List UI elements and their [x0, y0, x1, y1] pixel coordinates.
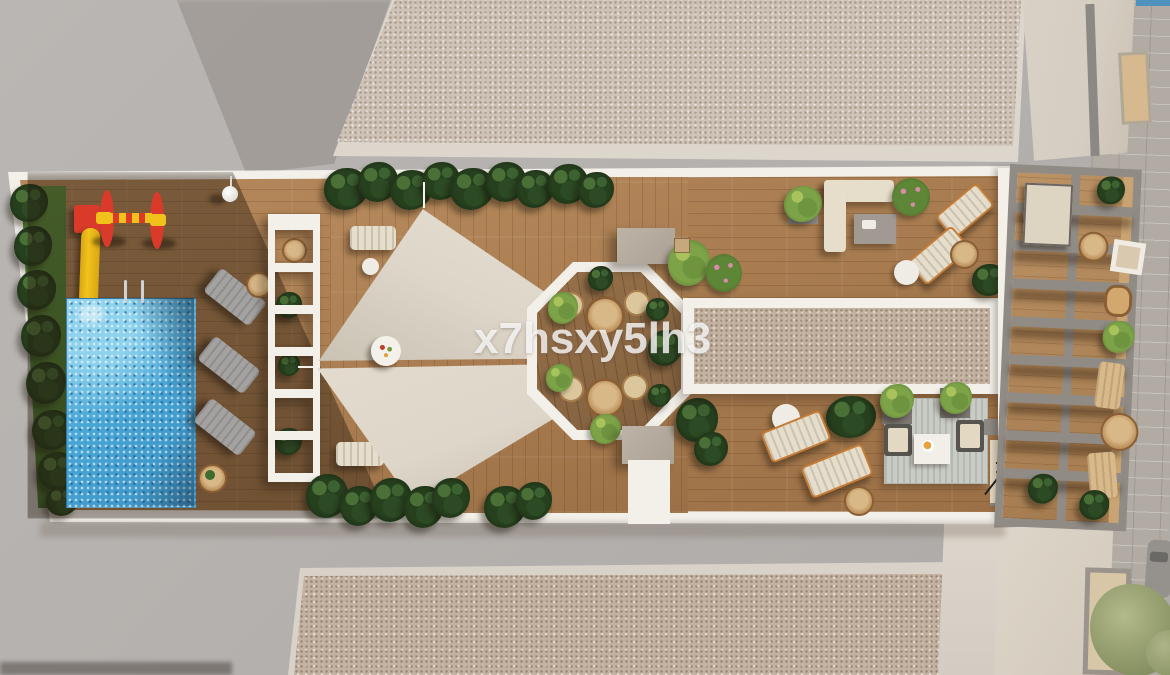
pool-corner-shade: [120, 430, 194, 506]
rug-armchair-cushion: [888, 428, 908, 452]
pool-corner-shade: [128, 298, 194, 418]
pergola-plant: [1096, 176, 1125, 205]
side-table-wood: [844, 486, 874, 516]
utility-block-bottom: [622, 426, 674, 464]
rug-armchair-cushion: [960, 424, 980, 448]
pergola-plant: [1027, 473, 1058, 504]
neighbor-pool-sliver: [1136, 0, 1170, 6]
neighbor-skylight: [1118, 51, 1152, 124]
rooftop-aerial-render: x7hsxy5lh3: [0, 0, 1170, 675]
top-gravel-strip: [333, 0, 1023, 152]
side-table-white: [362, 258, 379, 275]
car-windshield: [1150, 551, 1169, 562]
watermark-text: x7hsxy5lh3: [474, 314, 711, 364]
deck-crate: [674, 238, 690, 253]
pergola-frame-table: [1110, 239, 1146, 275]
sail-picnic-table: [371, 336, 401, 366]
corner-sofa-arm: [824, 180, 846, 252]
utility-block-top: [617, 228, 675, 264]
deck-lounger-white: [350, 226, 396, 250]
pool-ladder-rail: [124, 280, 127, 303]
gazebo-chair: [622, 374, 648, 400]
spinner-hub: [150, 214, 166, 226]
sail-rope: [298, 366, 318, 368]
side-table-wood: [950, 240, 979, 269]
street-curb-shadow: [0, 662, 232, 675]
spinner-hub: [96, 212, 112, 224]
bottom-path: [938, 518, 1002, 675]
skylight-strip-gravel: [694, 308, 990, 384]
bottom-gravel-strip: [294, 574, 954, 675]
flower-bush: [706, 254, 742, 292]
slide-splash: [78, 304, 104, 324]
pergola-armchair: [1103, 284, 1132, 317]
pergola-plant: [1079, 489, 1110, 520]
pergola-canvas-panel: [1022, 183, 1073, 247]
spinner-axle: [106, 213, 156, 223]
pergola-chair: [1078, 231, 1109, 262]
pergola-deck: [994, 164, 1142, 531]
white-slat-pergola: [268, 214, 320, 482]
rug-table-plate: [922, 440, 934, 452]
lamp-globe: [222, 186, 238, 202]
pool-ladder-rail: [141, 280, 144, 303]
white-path-bottom: [628, 460, 670, 524]
sail-rope: [423, 182, 425, 208]
terrace-frame-shadow: [40, 522, 1005, 537]
side-table-plant: [205, 470, 215, 480]
sofa-coffee-table: [854, 214, 896, 244]
gazebo-table: [585, 378, 625, 418]
pergola-bush: [1102, 320, 1135, 353]
side-table-white: [894, 260, 919, 285]
sofa-table-tray: [862, 220, 876, 229]
flower-bush: [892, 178, 930, 216]
